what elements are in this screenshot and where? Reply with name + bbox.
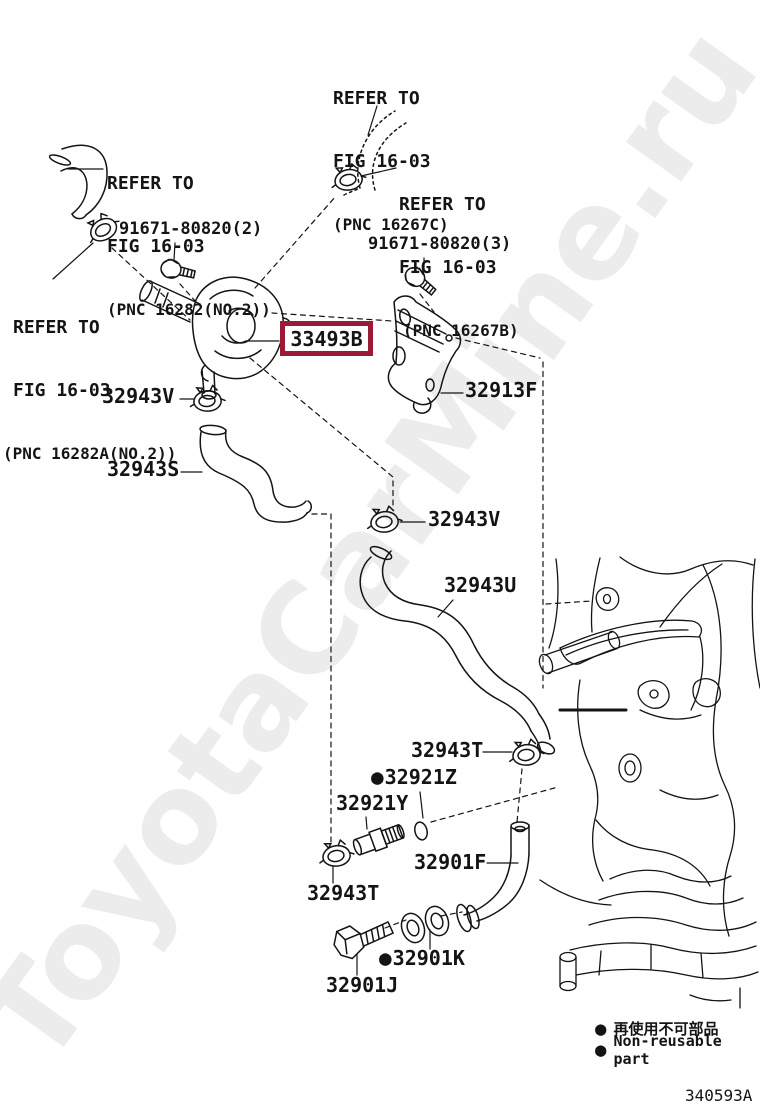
highlighted-part-box[interactable]: 33493B	[280, 321, 373, 356]
part-label-32921y[interactable]: 32921Y	[336, 792, 408, 814]
non-reusable-bullet-icon: ●	[371, 767, 384, 787]
part-label-32921z[interactable]: ● 32921Z	[371, 766, 457, 788]
refer-note-16267b[interactable]: REFER TO FIG 16-03 (PNC 16267B)	[399, 152, 519, 362]
part-label-91671-80820-2[interactable]: 91671-80820(2)	[119, 218, 262, 240]
part-label-91671-80820-3[interactable]: 91671-80820(3)	[368, 233, 511, 255]
gaskets-32901k-drawing	[398, 903, 453, 946]
hose-32901f-drawing	[454, 822, 529, 933]
union-32921y-drawing	[351, 821, 406, 857]
part-label-32901j[interactable]: 32901J	[326, 974, 398, 996]
non-reusable-bullet-icon: ●	[595, 1039, 606, 1061]
hose-32943s-drawing	[200, 424, 312, 522]
hose-16282-drawing	[48, 145, 107, 218]
part-label-32943s[interactable]: 32943S	[107, 458, 179, 480]
parts-diagram-page: ToyotaCarMine.ru	[0, 0, 760, 1112]
part-label-32901k[interactable]: ● 32901K	[379, 947, 465, 969]
part-label-32943t-right[interactable]: 32943T	[411, 739, 483, 761]
drawing-code: 340593A	[685, 1086, 752, 1105]
part-label-33493b: 33493B	[290, 327, 362, 351]
part-label-32943t-left[interactable]: 32943T	[307, 882, 379, 904]
clamp-32943t-left-drawing	[317, 838, 356, 869]
part-label-32901f[interactable]: 32901F	[414, 851, 486, 873]
part-label-32943v-2[interactable]: 32943V	[428, 508, 500, 530]
part-label-32943v-1[interactable]: 32943V	[102, 385, 174, 407]
non-reusable-bullet-icon: ●	[595, 1018, 606, 1040]
legend-text-en: Non-reusable part	[613, 1032, 760, 1068]
part-label-32943u[interactable]: 32943U	[444, 574, 516, 596]
legend-row-en: ● Non-reusable part	[595, 1039, 760, 1060]
oring-32921z-drawing	[413, 821, 429, 841]
refer-note-16282a[interactable]: REFER TO FIG 16-03 (PNC 16282A(NO.2))	[3, 275, 176, 485]
legend: ● 再使用不可部品 ● Non-reusable part	[595, 1018, 760, 1060]
engine-block-drawing	[537, 557, 760, 1008]
part-label-32913f[interactable]: 32913F	[465, 379, 537, 401]
non-reusable-bullet-icon: ●	[379, 948, 392, 968]
